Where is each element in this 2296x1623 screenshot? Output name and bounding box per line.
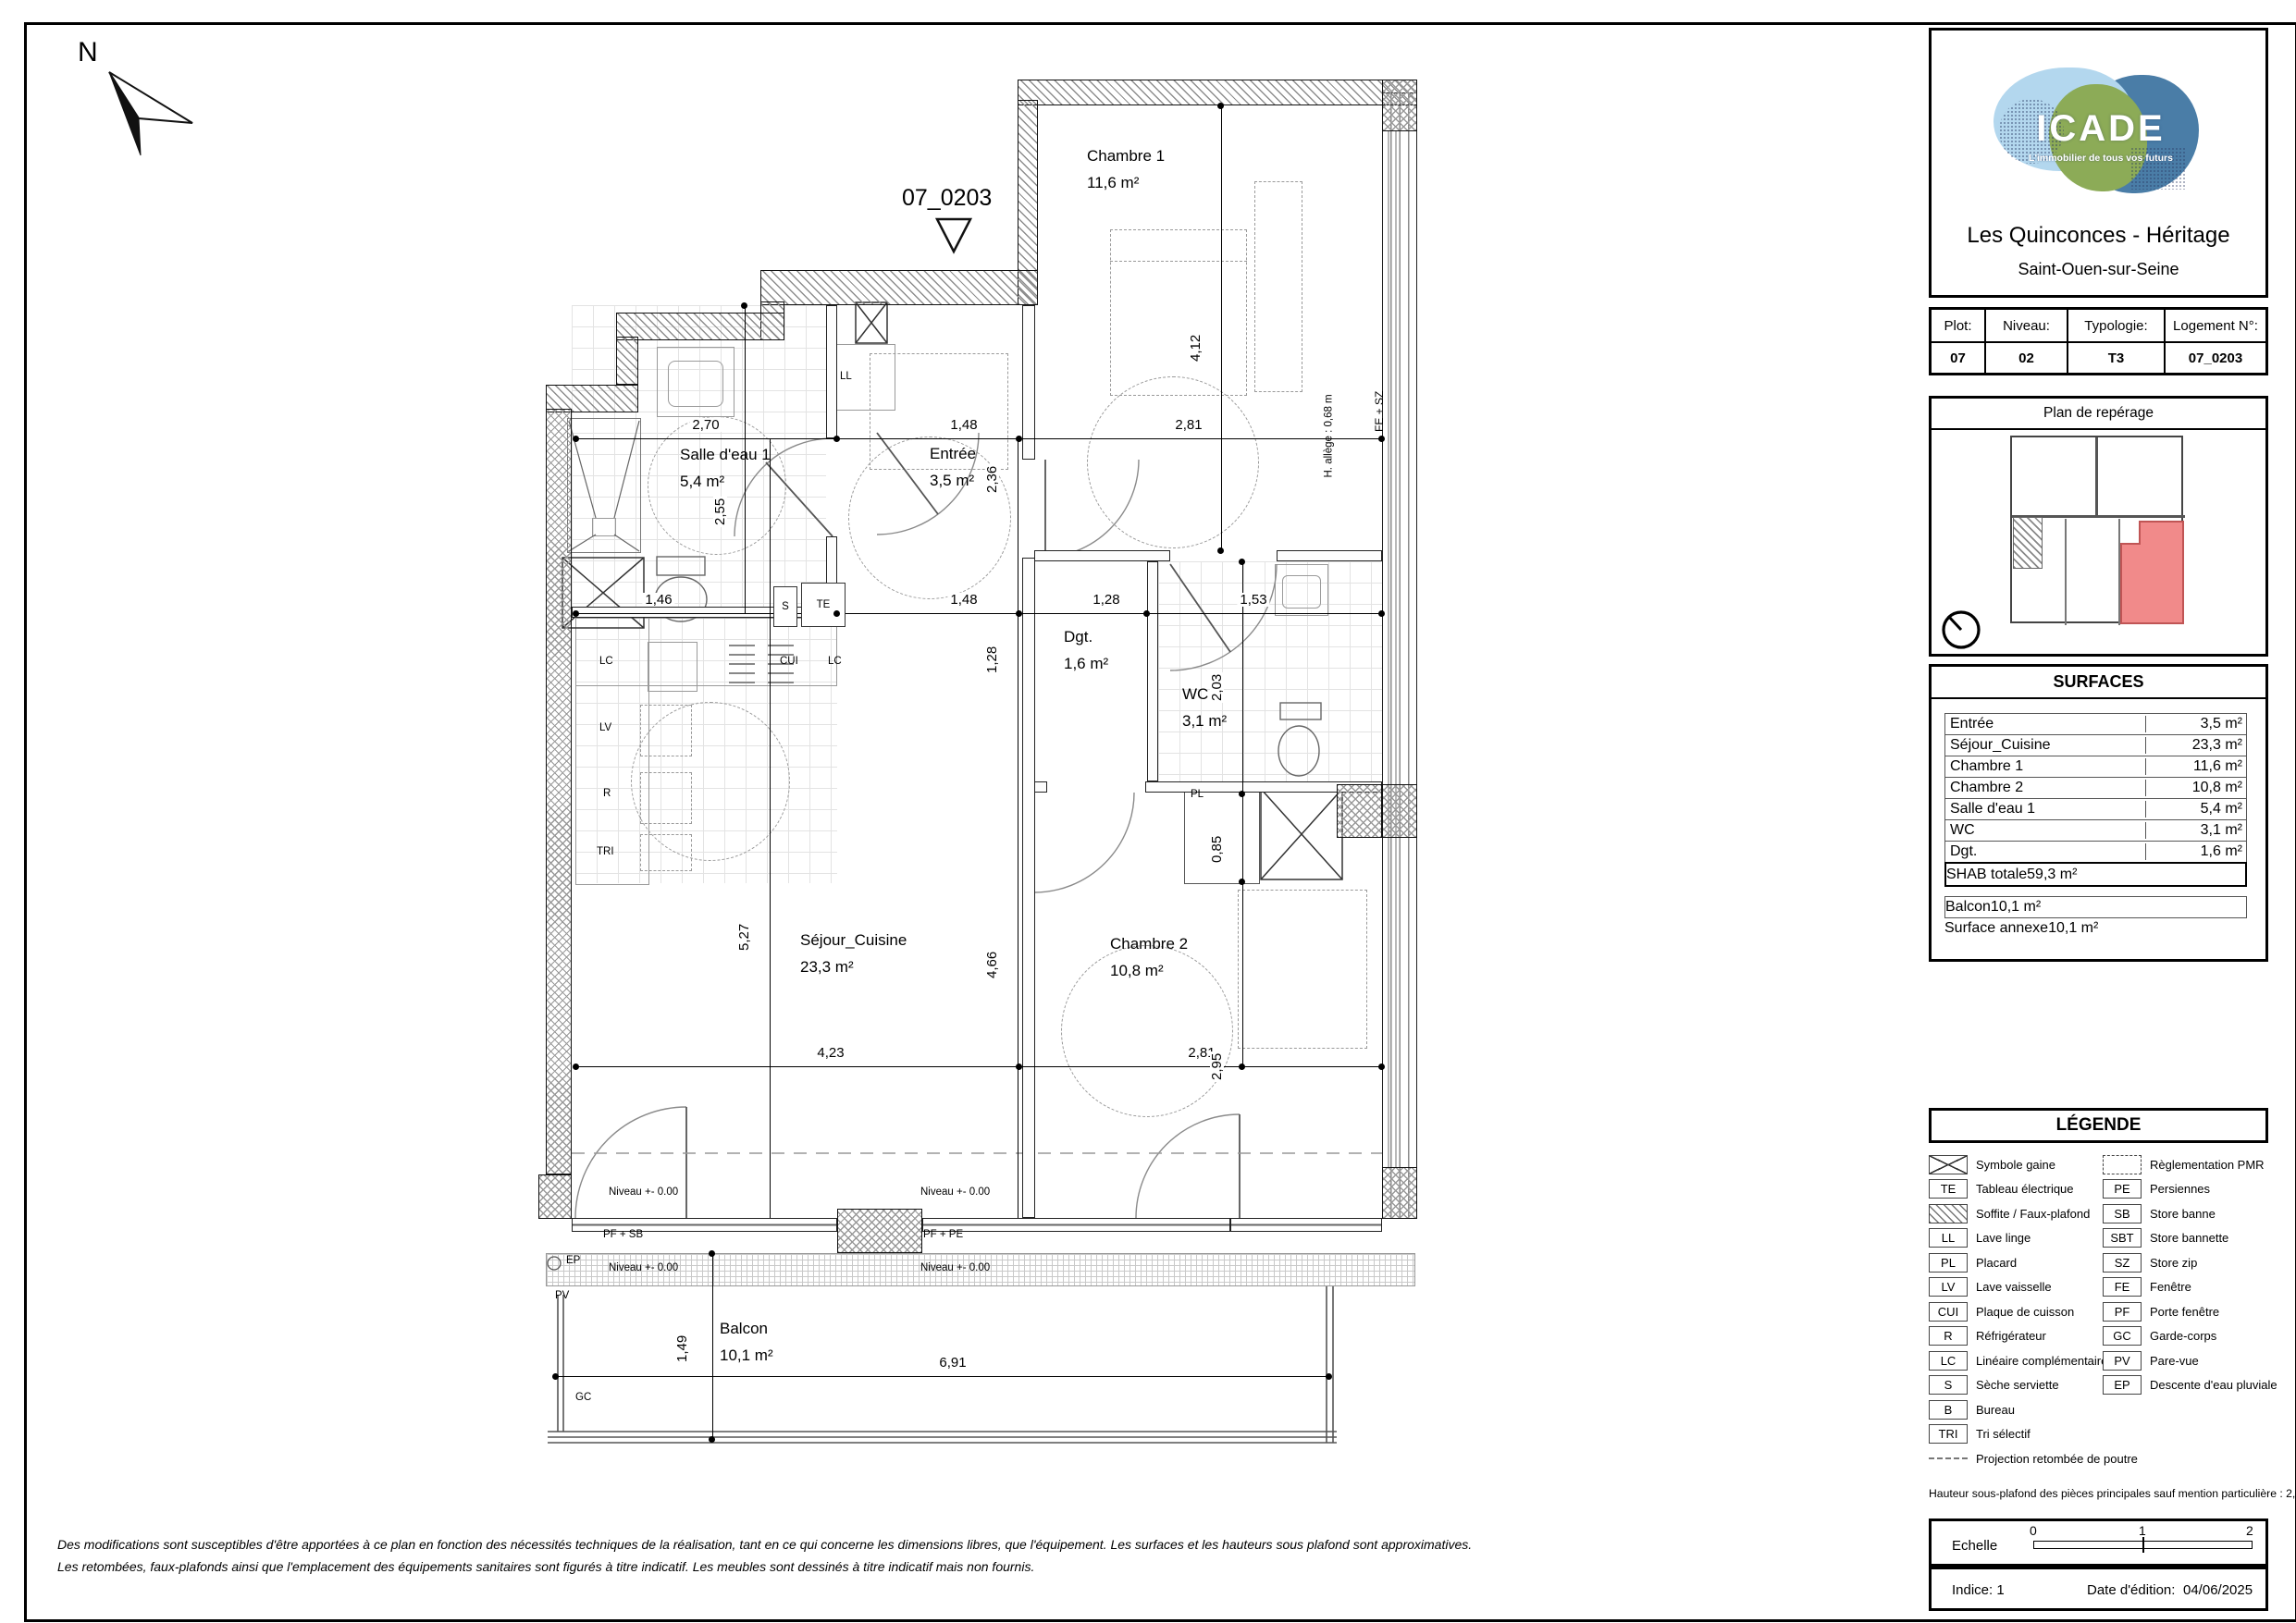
dim-dot [552, 1373, 559, 1380]
label-tri: TRI [597, 847, 614, 858]
dim-dot [1143, 610, 1150, 617]
electrical-panel-box: TE [801, 583, 846, 627]
wall-step-band-a [760, 270, 1038, 305]
dim-dot [1239, 791, 1245, 797]
plan-vector-overlay [0, 0, 2296, 1623]
dim-sejour-width: 4,23 [814, 1046, 846, 1060]
dim-dot [1016, 436, 1022, 442]
dim-dot [1239, 559, 1245, 565]
room-area: 23,3 m² [800, 959, 907, 975]
dim-chambre2-height: 2,95 [1210, 1051, 1224, 1082]
dim-dgt-height: 1,28 [985, 645, 999, 675]
dim-dot [1239, 879, 1245, 885]
partition-ch2-top-stub [1034, 781, 1047, 793]
label-gc: GC [575, 1393, 591, 1404]
dim-line-h1 [575, 438, 1382, 439]
label-niveau-4: Niveau +- 0.00 [920, 1263, 990, 1274]
door-swings [575, 433, 1277, 1218]
dim-entree-height: 2,36 [985, 464, 999, 495]
dim-dot [709, 1436, 715, 1443]
dim-line-v5-balcony [712, 1253, 713, 1441]
room-name: Chambre 2 [1110, 935, 1188, 953]
label-ep: EP [566, 1256, 580, 1267]
label-lc-2: LC [828, 657, 842, 668]
room-label-dgt: Dgt.1,6 m² [1064, 629, 1108, 671]
partition-ch1-bottom-right [1277, 550, 1382, 561]
dim-line-v2 [1018, 438, 1018, 1218]
north-arrow-icon [109, 72, 192, 155]
facade-pier-middle [1382, 784, 1417, 838]
room-area: 10,1 m² [720, 1347, 773, 1363]
dim-sde-height: 2,55 [713, 497, 727, 527]
dim-sejour-height: 5,27 [737, 922, 751, 953]
dim-line-v4 [1242, 561, 1243, 1066]
dim-line-v6 [770, 438, 771, 1218]
facade-pier-balcony [837, 1209, 922, 1253]
towel-dryer-box: S [773, 586, 797, 627]
dim-line-h4-balcony [555, 1376, 1329, 1377]
facade-pier-bottom [1382, 1167, 1417, 1219]
facade-pier-top [1382, 80, 1417, 131]
dim-dot [1378, 436, 1385, 442]
dim-sde-width2: 1,46 [642, 593, 674, 607]
dim-dot [573, 1064, 579, 1070]
label-niveau-2: Niveau +- 0.00 [920, 1187, 990, 1199]
dim-dot [833, 436, 840, 442]
room-area: 3,1 m² [1182, 713, 1227, 729]
dim-line-h2 [575, 613, 1382, 614]
dim-dot [833, 610, 840, 617]
balcony-railing [548, 1257, 1337, 1443]
room-label-sejour: Séjour_Cuisine23,3 m² [800, 932, 907, 975]
floor-plan-sheet: { "page": { "north_letter": "N", "unit_m… [0, 0, 2296, 1623]
towel-dryer-label: S [782, 601, 789, 612]
reperage-compass-icon [1944, 612, 1979, 647]
room-name: Entrée [930, 445, 976, 462]
partition-sde-right-upper [826, 305, 837, 438]
room-area: 10,8 m² [1110, 963, 1188, 978]
label-lc-1: LC [599, 657, 613, 668]
unit-marker-triangle-icon [937, 219, 970, 252]
dim-line-v3 [1221, 105, 1222, 550]
room-area: 1,6 m² [1064, 656, 1108, 671]
window-balcony-chambre2 [922, 1218, 1230, 1232]
wall-gaine-pier [1337, 784, 1382, 838]
dim-chambre1-width: 2,81 [1172, 418, 1204, 432]
room-label-entree: Entrée3,5 m² [930, 446, 976, 488]
dim-dot [1378, 1064, 1385, 1070]
dim-sde-width: 2,70 [689, 418, 722, 432]
room-label-chambre2: Chambre 210,8 m² [1110, 936, 1188, 978]
dim-entree-width: 1,48 [947, 418, 980, 432]
partition-main-upper [1022, 305, 1035, 460]
window-balcony-right [1230, 1218, 1382, 1232]
dim-dot [1326, 1373, 1332, 1380]
label-pf-sb: PF + SB [603, 1230, 643, 1241]
label-lave-linge: LL [840, 372, 852, 383]
wall-corner-bottom-left [538, 1174, 572, 1219]
room-name: Chambre 1 [1087, 147, 1165, 165]
room-name: Balcon [720, 1320, 768, 1337]
room-area: 3,5 m² [930, 473, 976, 488]
dim-dgt-width: 1,28 [1090, 593, 1122, 607]
dim-chambre1-height: 4,12 [1189, 333, 1203, 363]
label-pv: PV [555, 1291, 569, 1302]
duct-symbols [562, 302, 1342, 879]
room-label-salle-eau: Salle d'eau 15,4 m² [680, 447, 771, 489]
label-cui: CUI [780, 657, 798, 668]
wall-step-connector-2 [616, 337, 638, 385]
dim-dot [1217, 103, 1224, 109]
label-pf-pe: PF + PE [923, 1230, 963, 1241]
dim-dot [741, 302, 747, 309]
label-refrigerateur: R [603, 789, 611, 800]
room-label-balcon: Balcon10,1 m² [720, 1321, 773, 1363]
dim-dot [1239, 1064, 1245, 1070]
toilet-wc [1278, 703, 1321, 776]
wall-left [546, 409, 572, 1174]
dim-balcony-width: 6,91 [936, 1356, 969, 1370]
room-name: WC [1182, 685, 1208, 703]
dim-dot [573, 436, 579, 442]
partition-main-lower [1022, 558, 1035, 1218]
label-lave-vaisselle: LV [599, 723, 611, 734]
dim-dot [1016, 1064, 1022, 1070]
dim-line-h3 [575, 1066, 1382, 1067]
wall-step-band-b [616, 313, 784, 340]
shower-lines [569, 421, 639, 551]
dim-dot [573, 610, 579, 617]
dim-dot [1378, 610, 1385, 617]
dim-dot [709, 1250, 715, 1257]
partition-wc-left [1147, 561, 1158, 781]
label-niveau-3: Niveau +- 0.00 [609, 1263, 678, 1274]
room-area: 11,6 m² [1087, 175, 1165, 191]
dim-dot [1016, 610, 1022, 617]
dim-mid-height: 4,66 [985, 950, 999, 980]
room-area: 5,4 m² [680, 473, 771, 489]
room-name: Salle d'eau 1 [680, 446, 771, 463]
north-label: N [78, 37, 98, 68]
partition-ch1-bottom-left [1034, 550, 1170, 561]
dim-balcony-depth: 1,49 [675, 1334, 689, 1364]
dim-placard-height: 0,85 [1210, 834, 1224, 865]
dim-wc-height: 2,03 [1210, 672, 1224, 703]
room-name: Dgt. [1064, 628, 1092, 646]
label-fe-sz: FE + SZ [1374, 391, 1385, 432]
label-h-allege: H. allège : 0,68 m [1325, 394, 1336, 477]
dim-entree-width2: 1,48 [947, 593, 980, 607]
dim-wc-width: 1,53 [1237, 593, 1269, 607]
room-name: Séjour_Cuisine [800, 931, 907, 949]
room-label-chambre1: Chambre 111,6 m² [1087, 148, 1165, 191]
unit-marker-label: 07_0203 [902, 185, 992, 212]
wall-top [1018, 80, 1417, 105]
dim-dot [1217, 547, 1224, 554]
electrical-panel-label: TE [817, 599, 831, 610]
label-placard: PL [1191, 790, 1204, 801]
label-niveau-1: Niveau +- 0.00 [609, 1187, 678, 1199]
